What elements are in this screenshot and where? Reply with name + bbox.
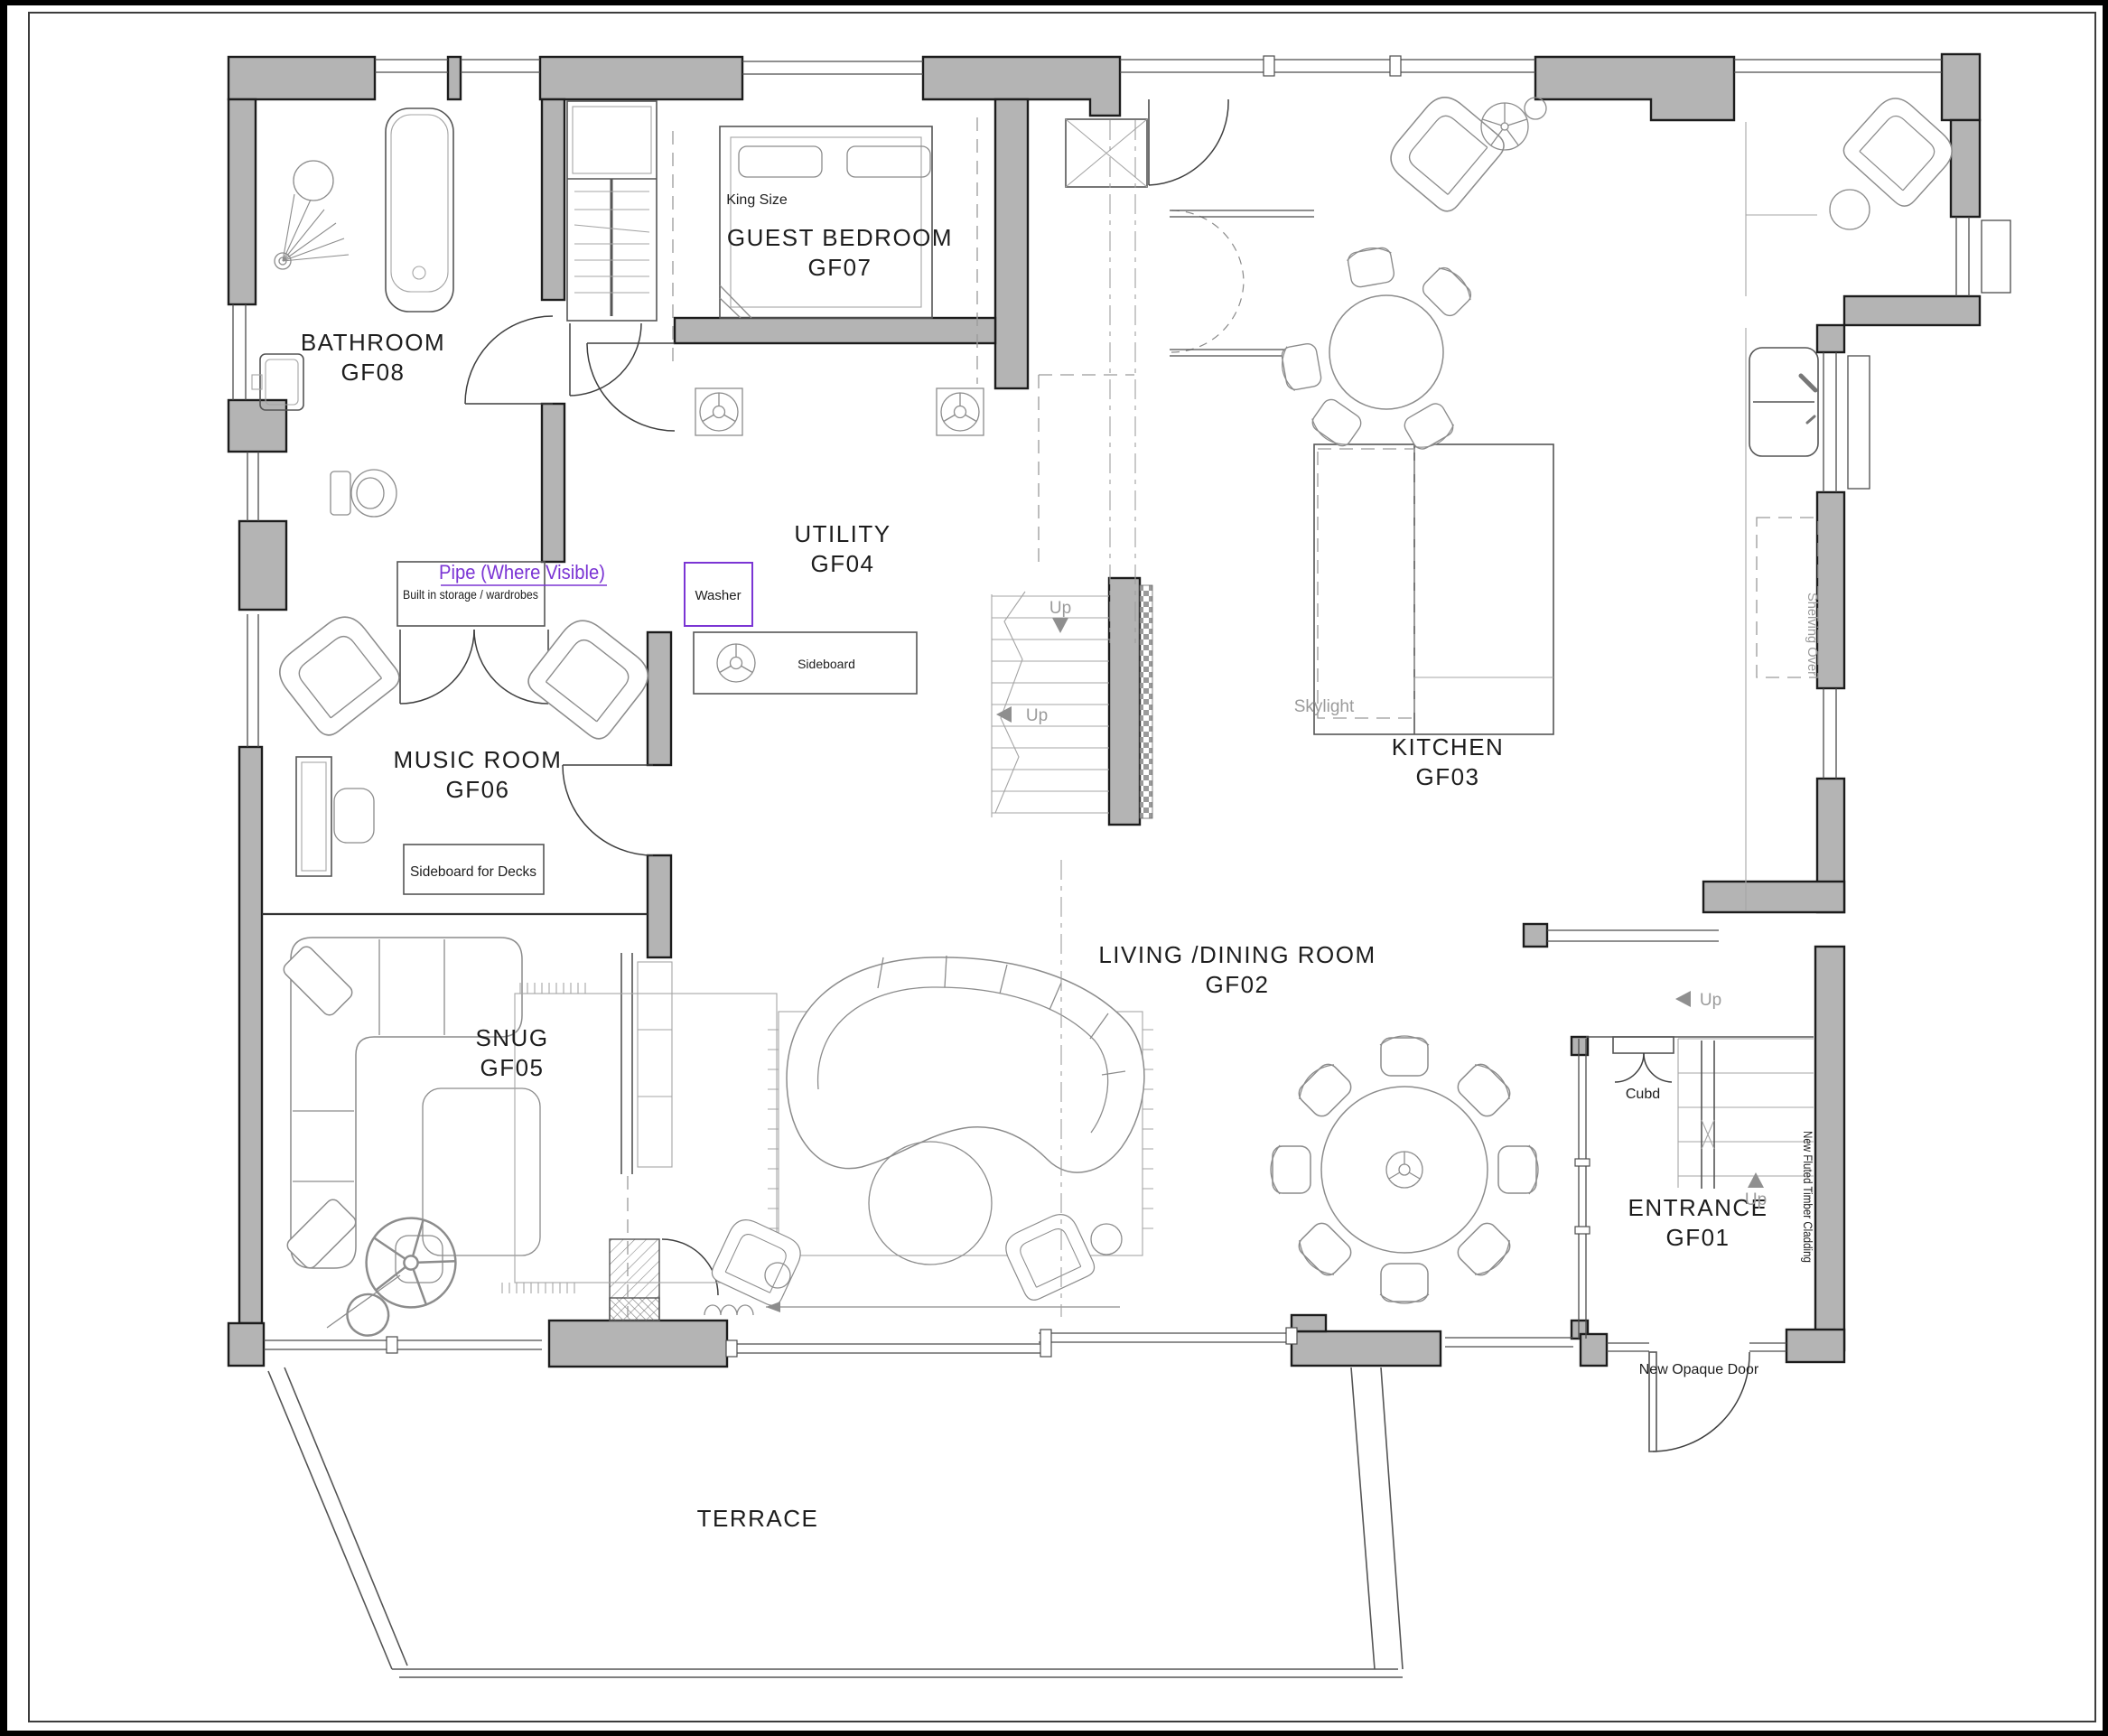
room-label-living-dining-room: LIVING /DINING ROOM [1098,941,1376,968]
annotation-sideboard: Sideboard [797,657,855,671]
up-label-3: Up [1745,1190,1767,1209]
annotation-cubd: Cubd [1626,1087,1660,1102]
room-code-gf05: GF05 [480,1054,544,1081]
room-code-gf02: GF02 [1205,971,1269,998]
flue [610,1239,659,1321]
annotation-new-opaque-door: New Opaque Door [1639,1362,1759,1377]
annotation-skylight: Skylight [1294,697,1355,716]
room-code-gf07: GF07 [807,254,872,281]
annotation-timber-cladding: New Fluted Timber Cladding [1801,1131,1815,1263]
room-code-gf04: GF04 [810,550,874,577]
room-code-gf06: GF06 [445,776,509,803]
up-label-2: Up [1700,991,1721,1010]
room-label-kitchen: KITCHEN [1392,733,1505,761]
annotation-king-size: King Size [726,192,788,208]
paper-sheet [7,5,2103,1731]
room-label-snug: SNUG [475,1024,548,1051]
annotation-pipe-note: Pipe (Where Visible) [439,561,605,583]
room-label-music-room: MUSIC ROOM [394,746,563,773]
annotation-sideboard-decks: Sideboard for Decks [410,864,536,880]
insulation-hatch [1140,585,1152,818]
annotation-washer: Washer [695,588,741,603]
room-code-gf08: GF08 [340,359,405,386]
room-code-gf01: GF01 [1665,1224,1730,1251]
up-label-1: Up [1026,706,1048,725]
room-label-utility: UTILITY [794,520,891,547]
room-label-guest-bedroom: GUEST BEDROOM [727,224,953,251]
annotation-shelving-over: Shelving Over [1805,593,1820,676]
room-label-bathroom: BATHROOM [301,329,445,356]
room-label-terrace: TERRACE [697,1505,819,1532]
room-code-gf03: GF03 [1415,763,1479,790]
annotation-built-in-storage: Built in storage / wardrobes [403,587,538,602]
up-label-0: Up [1049,599,1071,618]
floor-plan-page: BATHROOMGF08GUEST BEDROOMGF07UTILITYGF04… [0,0,2108,1736]
